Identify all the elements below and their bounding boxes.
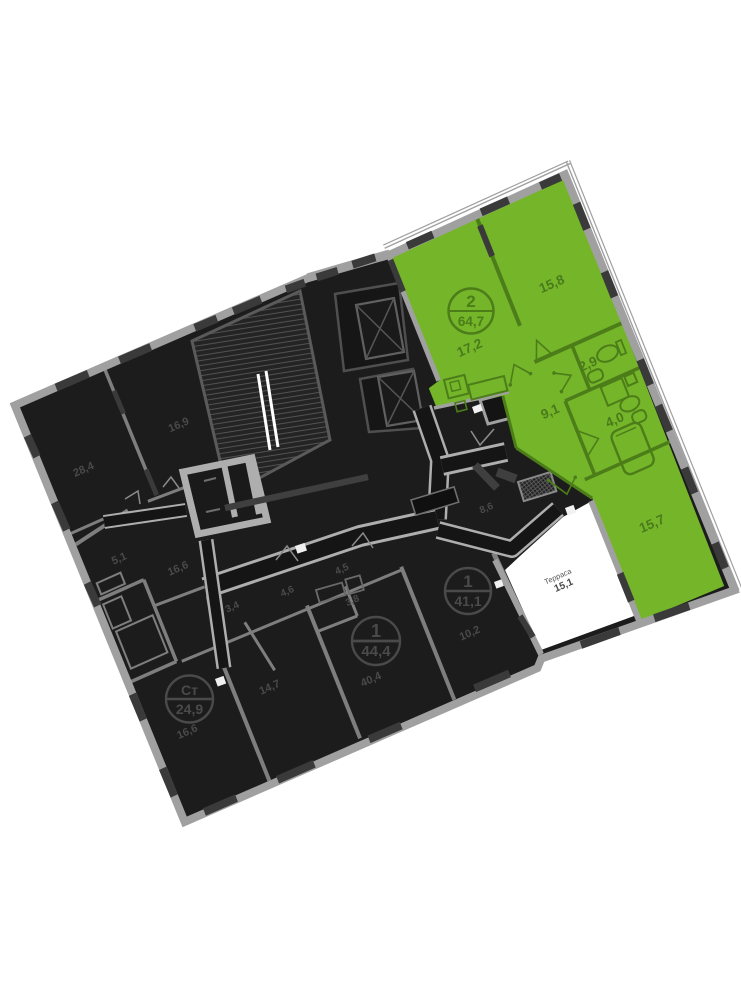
svg-text:41,1: 41,1 bbox=[454, 593, 481, 609]
svg-text:24,9: 24,9 bbox=[176, 701, 203, 717]
svg-text:2: 2 bbox=[466, 292, 475, 311]
svg-text:1: 1 bbox=[371, 621, 381, 641]
svg-text:Ст: Ст bbox=[181, 682, 198, 698]
svg-text:1: 1 bbox=[463, 572, 472, 591]
svg-text:44,4: 44,4 bbox=[361, 643, 391, 660]
svg-text:64,7: 64,7 bbox=[458, 314, 484, 329]
